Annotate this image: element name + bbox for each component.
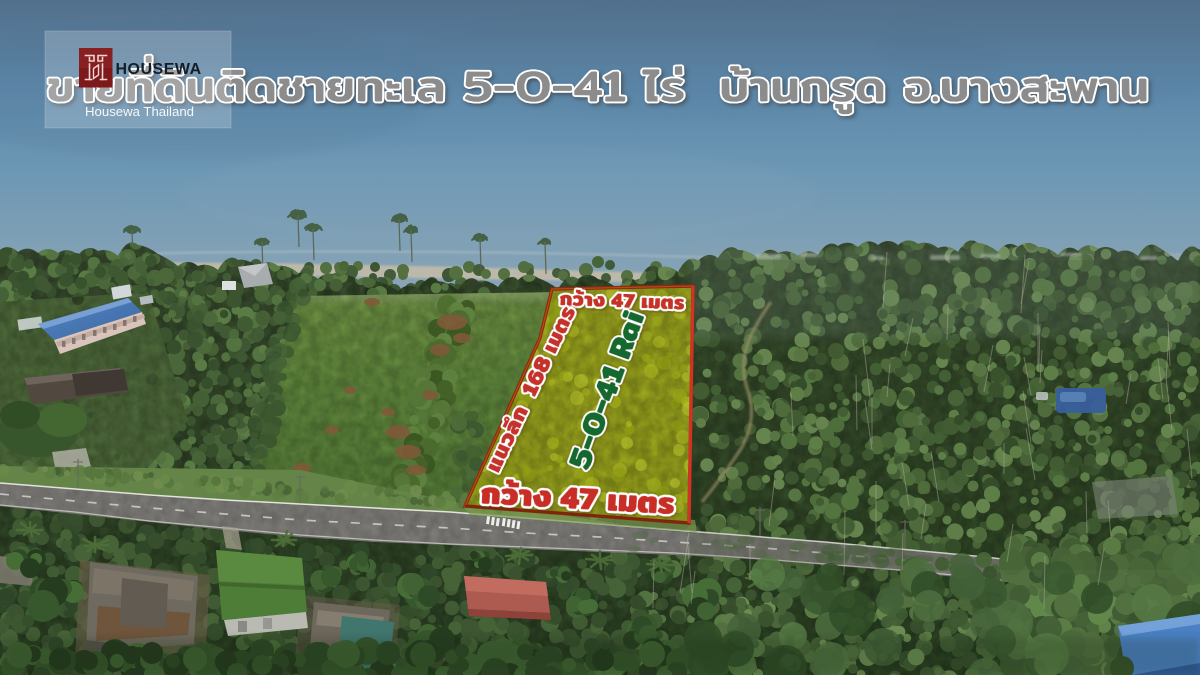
svg-text:Housewa Thailand: Housewa Thailand xyxy=(85,104,194,119)
svg-text:HOUSEWA: HOUSEWA xyxy=(116,61,202,78)
